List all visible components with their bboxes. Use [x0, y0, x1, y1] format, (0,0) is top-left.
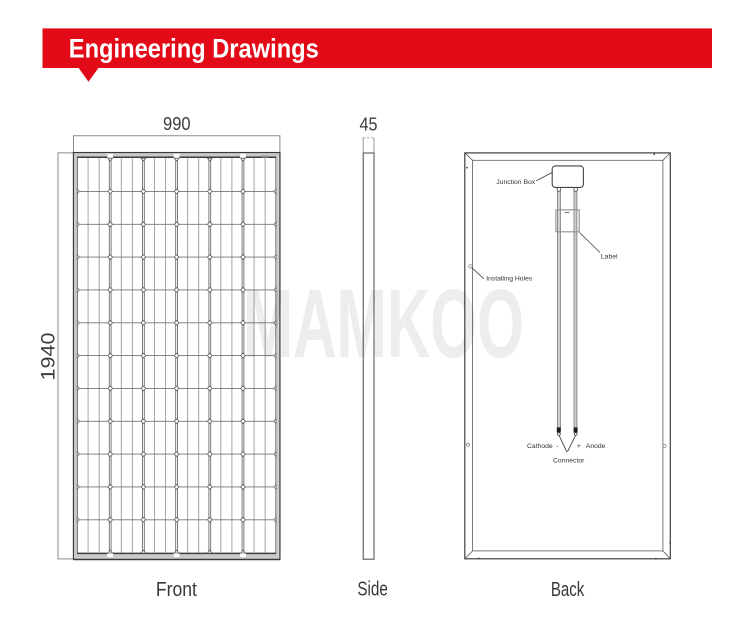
- svg-text:Label: Label: [601, 253, 618, 260]
- svg-text:Connector: Connector: [553, 458, 585, 465]
- svg-text:+: +: [577, 443, 581, 450]
- svg-text:990: 990: [163, 113, 191, 134]
- svg-text:Back: Back: [551, 579, 585, 601]
- svg-text:Junction Box: Junction Box: [496, 179, 536, 186]
- svg-text:45: 45: [360, 113, 378, 134]
- svg-text:-: -: [556, 443, 558, 450]
- svg-text:Side: Side: [357, 578, 388, 600]
- svg-text:Anode: Anode: [586, 443, 606, 450]
- svg-text:Front: Front: [156, 579, 197, 601]
- svg-text:MAMKOO: MAMKOO: [243, 269, 524, 378]
- svg-text:Engineering Drawings: Engineering Drawings: [69, 33, 319, 63]
- svg-text:1940: 1940: [39, 333, 60, 381]
- svg-text:Cathode: Cathode: [527, 443, 553, 450]
